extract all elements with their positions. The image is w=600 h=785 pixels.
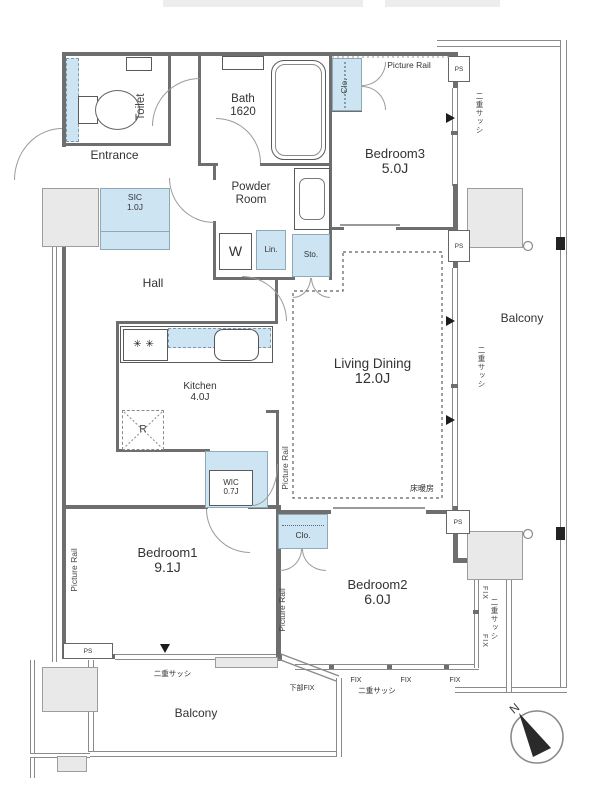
exterior-skin-left-lower xyxy=(30,660,35,778)
parapet-top-right xyxy=(437,40,567,47)
double-sash-label-bedroom3: 二重サッシ xyxy=(474,92,485,135)
bathtub xyxy=(271,60,326,160)
drain-marker xyxy=(556,237,565,250)
double-sash-label-bedroom1: 二重サッシ xyxy=(145,669,200,680)
ps-shaft: PS xyxy=(63,643,113,659)
sash-joint xyxy=(444,665,449,669)
balcony-right-label: Balcony xyxy=(488,311,556,327)
bath-label: Bath 1620 xyxy=(208,90,278,122)
balcony-bottom-label: Balcony xyxy=(160,706,232,722)
storage-sto: Sto. xyxy=(292,234,330,277)
sash-joint xyxy=(451,131,458,135)
hall-label: Hall xyxy=(118,276,188,292)
double-sash-label-east: 二重サッシ xyxy=(489,598,500,641)
ps-shaft: PS xyxy=(448,230,470,262)
fix-label: FIX xyxy=(394,676,418,686)
door-toilet xyxy=(152,78,200,126)
compass: N xyxy=(507,700,563,763)
door-sto-right xyxy=(311,278,330,298)
door-closet3-lower xyxy=(362,86,386,110)
wall xyxy=(62,211,66,658)
wall xyxy=(62,505,208,509)
fix-label: FIX xyxy=(443,676,467,686)
sash-joint xyxy=(451,384,458,388)
kitchen-sink xyxy=(214,329,259,361)
closet-bedroom2-label: Clo. xyxy=(278,526,328,546)
door-sto-left xyxy=(293,278,311,298)
kitchen-label: Kitchen 4.0J xyxy=(160,378,240,406)
top-slab-left xyxy=(163,0,363,7)
window-marker xyxy=(160,644,170,653)
door-powder-room xyxy=(169,178,214,223)
wic-label-box: WIC 0.7J xyxy=(209,470,253,506)
window-living-east xyxy=(452,268,458,510)
bedroom1-label: Bedroom1 9.1J xyxy=(115,538,220,584)
door-living xyxy=(242,276,287,321)
bathtub-inner xyxy=(275,64,322,156)
parapet-balcony-right xyxy=(336,678,342,757)
ps-shaft: PS xyxy=(448,56,470,82)
toilet-bowl xyxy=(95,90,140,130)
window-marker xyxy=(446,113,455,123)
bedroom3-label: Bedroom3 5.0J xyxy=(345,140,445,184)
fix-label-east: FIX xyxy=(481,586,488,600)
lower-fix-label: 下部FIX xyxy=(278,683,326,694)
entrance-label: Entrance xyxy=(72,148,157,164)
double-sash-label-living: 二重サッシ xyxy=(476,346,487,389)
fix-label-east: FIX xyxy=(481,634,488,648)
pillar-small xyxy=(57,756,87,772)
wall xyxy=(62,143,171,146)
bedroom2-label: Bedroom2 6.0J xyxy=(325,570,430,616)
double-sash-label-bedroom2: 二重サッシ xyxy=(347,686,407,697)
sash-joint xyxy=(329,665,334,669)
parapet-right xyxy=(560,40,567,692)
wall xyxy=(276,410,279,514)
window-marker xyxy=(446,415,455,425)
picture-rail-bedroom2-label: Picture Rail xyxy=(278,576,288,644)
closet-bedroom3-label: Clo. xyxy=(340,71,350,101)
balcony-sill xyxy=(215,657,278,668)
drain-marker xyxy=(556,527,565,540)
linen-label: Lin. xyxy=(265,246,278,255)
ps-shaft: PS xyxy=(446,510,470,534)
wall xyxy=(213,221,216,280)
sic-label: SIC 1.0J xyxy=(101,193,169,212)
washer-label: W xyxy=(229,244,242,260)
sic-box: SIC 1.0J xyxy=(100,188,170,250)
drain xyxy=(524,242,533,251)
pillar xyxy=(42,188,99,247)
washing-machine: W xyxy=(219,233,252,270)
stove: ✳✳ xyxy=(123,329,168,361)
sash-joint xyxy=(473,610,479,614)
refrigerator-space: R xyxy=(122,410,164,450)
bath-counter xyxy=(222,56,264,70)
sliding-door-bedroom3 xyxy=(340,224,400,226)
door-wic xyxy=(252,464,278,506)
window-marker xyxy=(446,316,455,326)
window-bedroom3-east xyxy=(452,88,458,186)
powder-room-label: Powder Room xyxy=(216,178,286,210)
exterior-skin-left xyxy=(52,247,57,662)
parapet-east-strip xyxy=(506,580,512,692)
wall xyxy=(332,227,344,230)
sash-joint xyxy=(387,665,392,669)
sliding-door-bedroom2 xyxy=(333,507,425,509)
drain xyxy=(524,530,533,539)
wall xyxy=(260,163,332,166)
living-dining-label: Living Dining 12.0J xyxy=(305,348,440,396)
floor-plan: W Lin. Sto. SIC 1.0J Clo. ✳✳ R WIC 0.7J … xyxy=(0,0,600,785)
picture-rail-kitchen-label: Picture Rail xyxy=(281,429,291,507)
floor-heating-label: 床暖房 xyxy=(400,483,444,495)
pillar xyxy=(467,531,523,580)
door-closet2-right xyxy=(302,549,326,571)
wall xyxy=(116,321,278,324)
door-entrance xyxy=(14,128,62,180)
pillar xyxy=(467,188,523,248)
picture-rail-top-label: Picture Rail xyxy=(374,60,444,72)
door-closet2-left xyxy=(280,549,302,571)
wall xyxy=(116,321,119,452)
parapet-balcony-bottom xyxy=(88,751,342,757)
sto-label: Sto. xyxy=(304,251,318,260)
compass-north: N xyxy=(507,700,523,716)
toilet-shelf xyxy=(126,57,152,71)
toilet-label: Toilet xyxy=(135,81,148,133)
washbasin-bowl xyxy=(299,178,325,220)
sic-divider xyxy=(101,231,169,232)
fix-label: FIX xyxy=(344,676,368,686)
pillar xyxy=(42,667,98,712)
picture-rail-bedroom1-label: Picture Rail xyxy=(70,510,80,630)
linen-storage: Lin. xyxy=(256,230,286,270)
top-slab-right xyxy=(385,0,500,7)
door-bath xyxy=(216,118,261,163)
